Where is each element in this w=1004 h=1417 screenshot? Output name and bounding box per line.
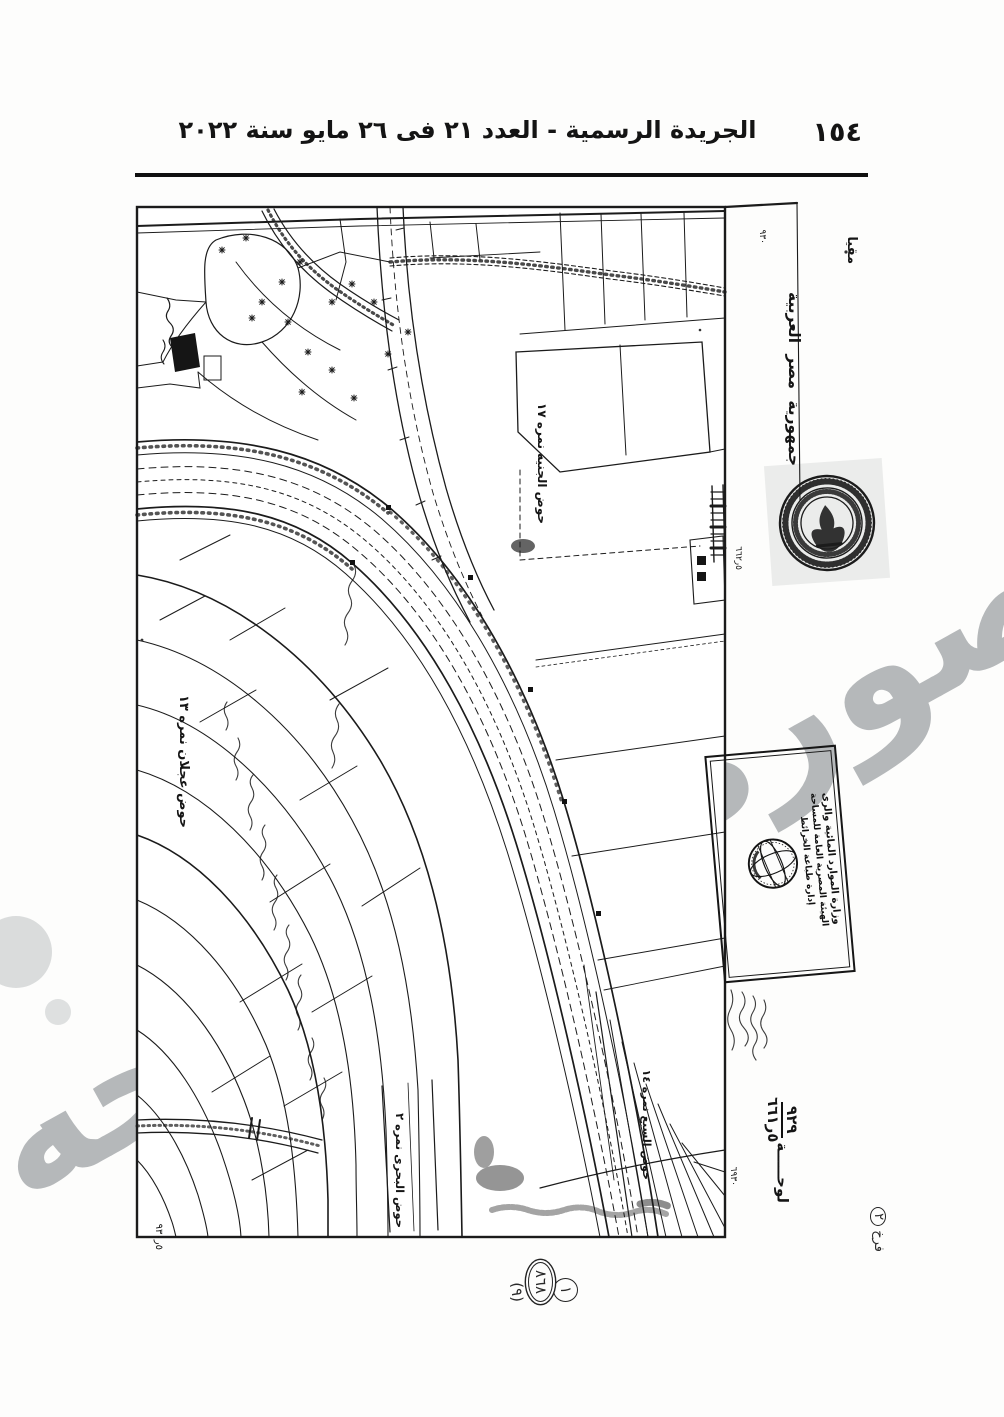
hod-label-aglan: حوض عجلان نمره ١٣ — [176, 636, 190, 828]
page-header: الجريدة الرسمية - العدد ٢١ فى ٢٦ مايو سن… — [137, 116, 868, 166]
gazette-page: { "page": { "header_title": "الجريدة الر… — [0, 0, 1004, 1417]
hod-label-genia: حوض الجنيه نمره ١٧ — [535, 356, 548, 524]
hod-label-bahari: حوض البحرى نمره ٢ — [393, 1090, 406, 1228]
sheet-page-note: فرخ ٢ — [870, 1178, 886, 1252]
rect-stamp-content: وزارة الموارد المائية والرى الهيئة المصر… — [716, 752, 846, 973]
hod-label-sabaa: حوض السبع نمره ١٤ — [640, 1024, 652, 1180]
globe-icon — [744, 832, 803, 894]
country-label: جمهورية مصر العربية — [785, 266, 802, 466]
handwritten-annotations: ١ ٨٦٨ (٩) — [505, 1230, 578, 1302]
scale-label: مقيا — [844, 204, 858, 264]
header-rule — [135, 173, 868, 177]
gazette-header-title: الجريدة الرسمية - العدد ٢١ فى ٢٦ مايو سن… — [137, 116, 798, 144]
grid-ref-bottom-left: ٥ر٩٣٠ — [153, 1206, 164, 1250]
grid-ref-mid-right: ٥ر٦٦٢ — [732, 530, 742, 570]
signature-squiggles — [728, 990, 767, 1060]
sheet-fraction: ٩٢٩٥ر٦٦١ — [764, 1097, 801, 1142]
page-number: ١٥٤ — [813, 117, 862, 148]
watermark-fragments — [0, 916, 71, 1025]
sheet-word: لوحـــــة — [773, 1142, 791, 1203]
rect-stamp: وزارة الموارد المائية والرى الهيئة المصر… — [704, 745, 855, 984]
sheet-number: لوحـــــة٩٢٩٥ر٦٦١ — [764, 1053, 801, 1203]
grid-ref-top-right: ٩٣٠ — [756, 210, 766, 244]
grid-ref-bottom-right: ٦٩٣٠ — [727, 1146, 737, 1186]
